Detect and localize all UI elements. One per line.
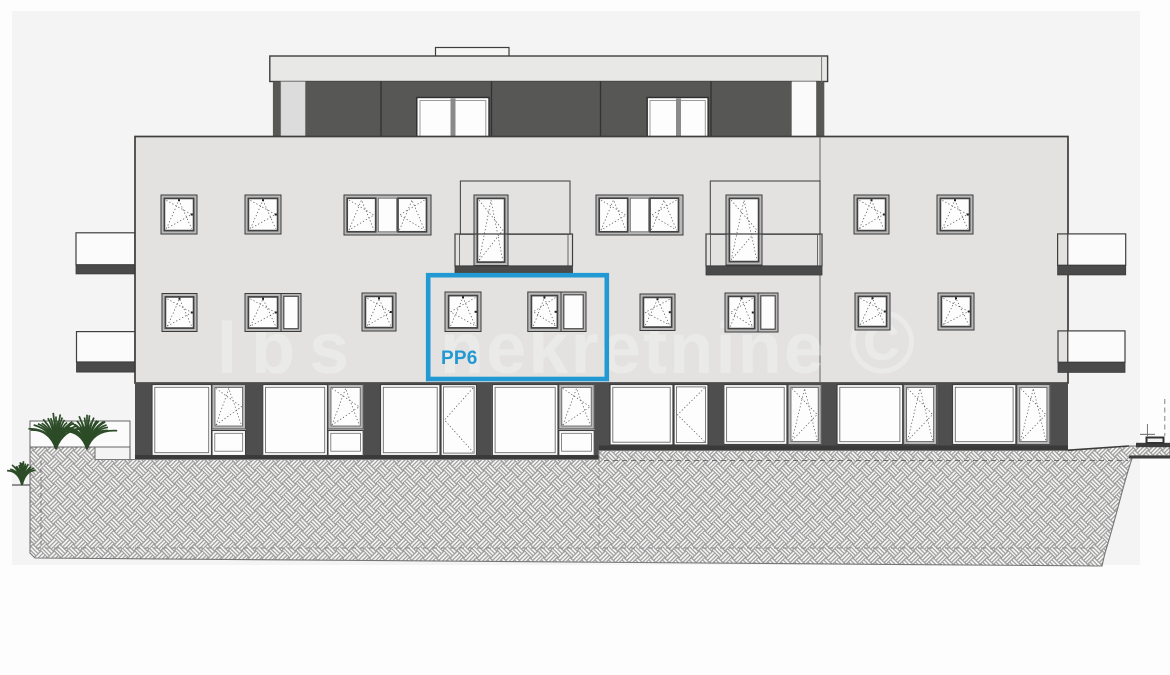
svg-text:PP6: PP6 — [441, 348, 478, 369]
